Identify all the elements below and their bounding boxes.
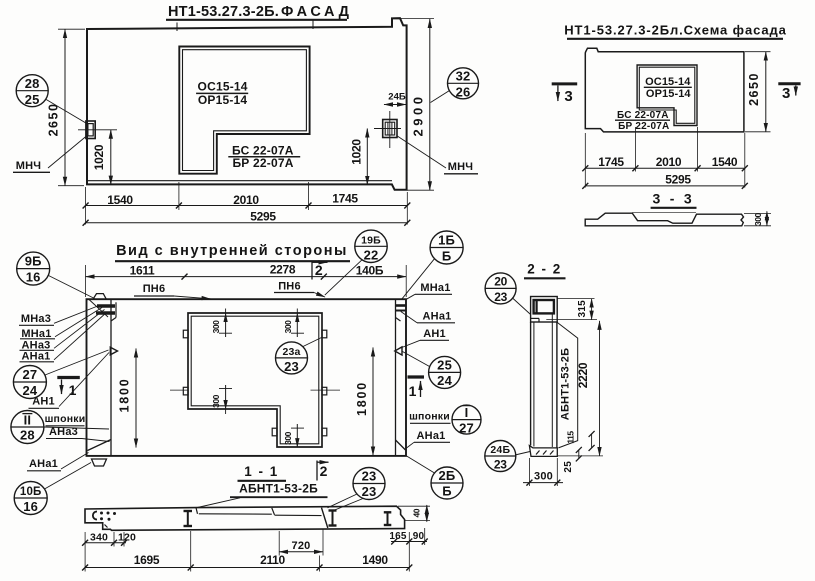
svg-text:16: 16: [26, 270, 41, 285]
svg-text:315: 315: [577, 300, 588, 318]
svg-text:2110: 2110: [260, 553, 285, 567]
svg-text:1611: 1611: [130, 263, 155, 277]
svg-text:340: 340: [90, 532, 108, 544]
svg-text:22: 22: [364, 247, 379, 262]
svg-text:МНЧ: МНЧ: [448, 161, 473, 173]
svg-text:2: 2: [320, 463, 328, 479]
svg-text:АНа1: АНа1: [417, 430, 446, 442]
svg-text:5295: 5295: [250, 210, 276, 224]
svg-text:АН1: АН1: [32, 396, 55, 408]
svg-text:АБНТ1-53-2Б: АБНТ1-53-2Б: [560, 348, 572, 420]
svg-text:300: 300: [283, 320, 293, 333]
svg-text:28: 28: [20, 428, 35, 443]
svg-text:23: 23: [494, 290, 507, 304]
svg-text:2: 2: [315, 262, 323, 278]
svg-text:МНЧ: МНЧ: [16, 160, 41, 172]
svg-text:20: 20: [494, 275, 507, 289]
svg-text:ПН6: ПН6: [143, 283, 166, 295]
svg-text:120: 120: [118, 532, 136, 544]
svg-text:НТ1-53.27.3-2Бл.Схема фасада: НТ1-53.27.3-2Бл.Схема фасада: [564, 23, 787, 38]
svg-text:300: 300: [283, 431, 293, 444]
svg-text:3 - 3: 3 - 3: [652, 191, 694, 207]
svg-text:II: II: [24, 413, 32, 428]
svg-text:АНа1: АНа1: [29, 458, 58, 470]
svg-text:300: 300: [211, 320, 221, 333]
svg-text:26: 26: [456, 84, 471, 99]
svg-text:Б: Б: [442, 249, 452, 264]
svg-text:Б: Б: [442, 484, 452, 499]
svg-text:1745: 1745: [598, 155, 624, 169]
svg-text:АН1: АН1: [423, 328, 446, 340]
svg-text:2010: 2010: [233, 193, 259, 207]
svg-text:1: 1: [409, 383, 417, 399]
svg-text:3: 3: [564, 88, 572, 105]
svg-text:ОС15-14: ОС15-14: [198, 80, 248, 94]
svg-text:5295: 5295: [665, 173, 691, 187]
svg-text:24: 24: [437, 373, 452, 388]
svg-text:27: 27: [459, 421, 474, 436]
svg-text:1800: 1800: [118, 377, 132, 412]
svg-text:1800: 1800: [355, 381, 369, 416]
svg-text:300: 300: [753, 212, 763, 225]
svg-text:25: 25: [25, 92, 40, 107]
svg-text:ОР15-14: ОР15-14: [646, 88, 692, 100]
svg-text:ПН6: ПН6: [278, 281, 301, 293]
svg-text:40: 40: [412, 508, 422, 517]
svg-text:300: 300: [211, 394, 221, 407]
svg-text:ФАСАД: ФАСАД: [281, 4, 353, 20]
svg-text:МНа1: МНа1: [420, 282, 450, 294]
svg-text:2650: 2650: [747, 72, 761, 106]
svg-text:2900: 2900: [410, 94, 425, 137]
svg-text:32: 32: [456, 68, 471, 83]
svg-text:АНа1: АНа1: [22, 351, 51, 363]
svg-text:23: 23: [362, 469, 377, 484]
svg-text:1020: 1020: [92, 144, 106, 170]
svg-text:2278: 2278: [270, 262, 296, 276]
svg-text:I: I: [465, 405, 469, 420]
svg-text:300: 300: [534, 471, 553, 483]
svg-text:1: 1: [69, 382, 77, 398]
svg-text:Вид с внутренней стороны: Вид с внутренней стороны: [116, 243, 348, 259]
svg-text:1540: 1540: [107, 193, 133, 207]
svg-text:25: 25: [563, 461, 574, 473]
svg-text:9Б: 9Б: [25, 254, 42, 269]
svg-text:1490: 1490: [362, 553, 388, 567]
svg-text:23: 23: [362, 484, 377, 499]
svg-text:ОР15-14: ОР15-14: [198, 93, 248, 107]
svg-text:АНа3: АНа3: [49, 426, 78, 438]
svg-text:23: 23: [284, 359, 299, 374]
svg-text:23а: 23а: [282, 346, 300, 358]
svg-text:2Б: 2Б: [439, 468, 456, 483]
svg-text:шпонки: шпонки: [45, 413, 86, 425]
svg-text:25: 25: [437, 358, 452, 373]
svg-text:МНа1: МНа1: [21, 328, 51, 340]
svg-text:2 - 2: 2 - 2: [527, 262, 562, 277]
svg-text:БР 22-07А: БР 22-07А: [232, 156, 293, 170]
svg-text:БР 22-07А: БР 22-07А: [618, 121, 669, 132]
svg-text:3: 3: [782, 85, 790, 102]
svg-text:19Б: 19Б: [361, 234, 381, 246]
svg-text:720: 720: [292, 540, 311, 552]
svg-text:МНа3: МНа3: [21, 313, 51, 325]
svg-text:16: 16: [23, 499, 38, 514]
svg-text:ОС15-14: ОС15-14: [645, 76, 691, 88]
svg-text:1 - 1: 1 - 1: [244, 464, 279, 479]
svg-text:2010: 2010: [656, 155, 682, 169]
svg-text:1695: 1695: [134, 553, 160, 567]
svg-text:24Б: 24Б: [490, 444, 510, 456]
svg-text:90: 90: [413, 531, 425, 542]
svg-text:115: 115: [566, 431, 576, 444]
svg-text:1745: 1745: [332, 192, 358, 206]
svg-text:165: 165: [389, 531, 407, 542]
svg-text:23: 23: [494, 458, 507, 472]
svg-text:28: 28: [25, 76, 40, 91]
svg-text:27: 27: [22, 367, 37, 382]
svg-text:2650: 2650: [47, 103, 61, 137]
svg-text:АНа1: АНа1: [423, 311, 452, 323]
svg-text:10Б: 10Б: [20, 486, 42, 498]
svg-text:1540: 1540: [712, 155, 738, 169]
svg-text:НТ1-53.27.3-2Б.: НТ1-53.27.3-2Б.: [168, 4, 279, 20]
svg-text:шпонки: шпонки: [409, 411, 450, 423]
svg-text:1Б: 1Б: [438, 233, 455, 248]
svg-text:АБНТ1-53-2Б: АБНТ1-53-2Б: [239, 482, 318, 496]
svg-text:БС 22-07А: БС 22-07А: [617, 110, 669, 121]
svg-text:1020: 1020: [349, 139, 363, 165]
svg-text:24Б: 24Б: [388, 92, 406, 103]
svg-text:140Б: 140Б: [356, 263, 384, 277]
